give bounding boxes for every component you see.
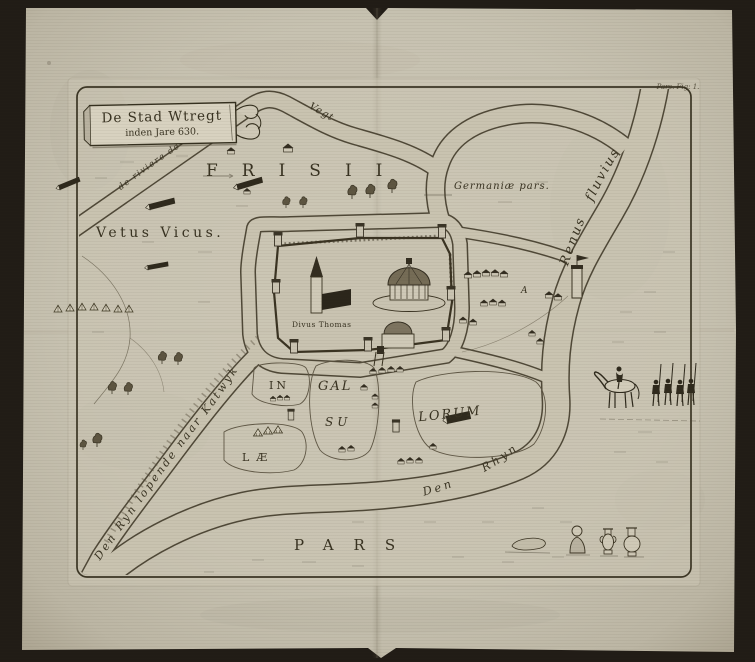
label-pars: PARS	[294, 536, 415, 554]
engraved-map-sheet: De Stad Wtregt inden Jare 630. Pars. Fig…	[0, 0, 755, 662]
map-canvas: De Stad Wtregt inden Jare 630. Pars. Fig…	[0, 0, 755, 662]
rotunda-base	[382, 334, 414, 348]
label-island-lae: LÆ	[242, 451, 274, 464]
dome-lantern	[406, 258, 412, 264]
wall-turret-icon	[438, 224, 447, 238]
wall-turret-icon	[290, 339, 299, 353]
dome-colonnade	[390, 284, 428, 300]
cartouche-subtitle: inden Jare 630.	[125, 126, 199, 139]
wall-turret-icon	[364, 337, 373, 351]
village-tower-icon	[392, 419, 400, 432]
church-tower	[311, 277, 322, 313]
wall-turret-icon	[442, 327, 451, 341]
label-island-su: SU	[325, 415, 351, 429]
plate-caption: Pars. Fig: 1.	[656, 83, 700, 91]
cartouche-title: De Stad Wtregt	[101, 108, 222, 127]
wall-turret-icon	[447, 286, 456, 300]
cartouche-left-fold	[84, 106, 91, 146]
village-tower-icon	[287, 409, 294, 420]
label-island-in: IN	[269, 379, 289, 392]
wall-turret-icon	[356, 223, 365, 237]
label-divus-thomas: Divus Thomas	[292, 320, 352, 329]
label-frisii: FRISII	[206, 161, 406, 181]
label-marker-a: A	[520, 286, 528, 296]
city-gate	[377, 346, 384, 354]
wall-turret-icon	[272, 279, 281, 293]
label-vetus-vicus: Vetus Vicus.	[95, 225, 224, 241]
cartouche: De Stad Wtregt inden Jare 630.	[84, 102, 262, 148]
label-germaniae-pars: Germaniæ pars.	[454, 181, 550, 192]
label-island-gal: GAL	[318, 379, 352, 394]
wall-turret-icon	[274, 232, 283, 246]
